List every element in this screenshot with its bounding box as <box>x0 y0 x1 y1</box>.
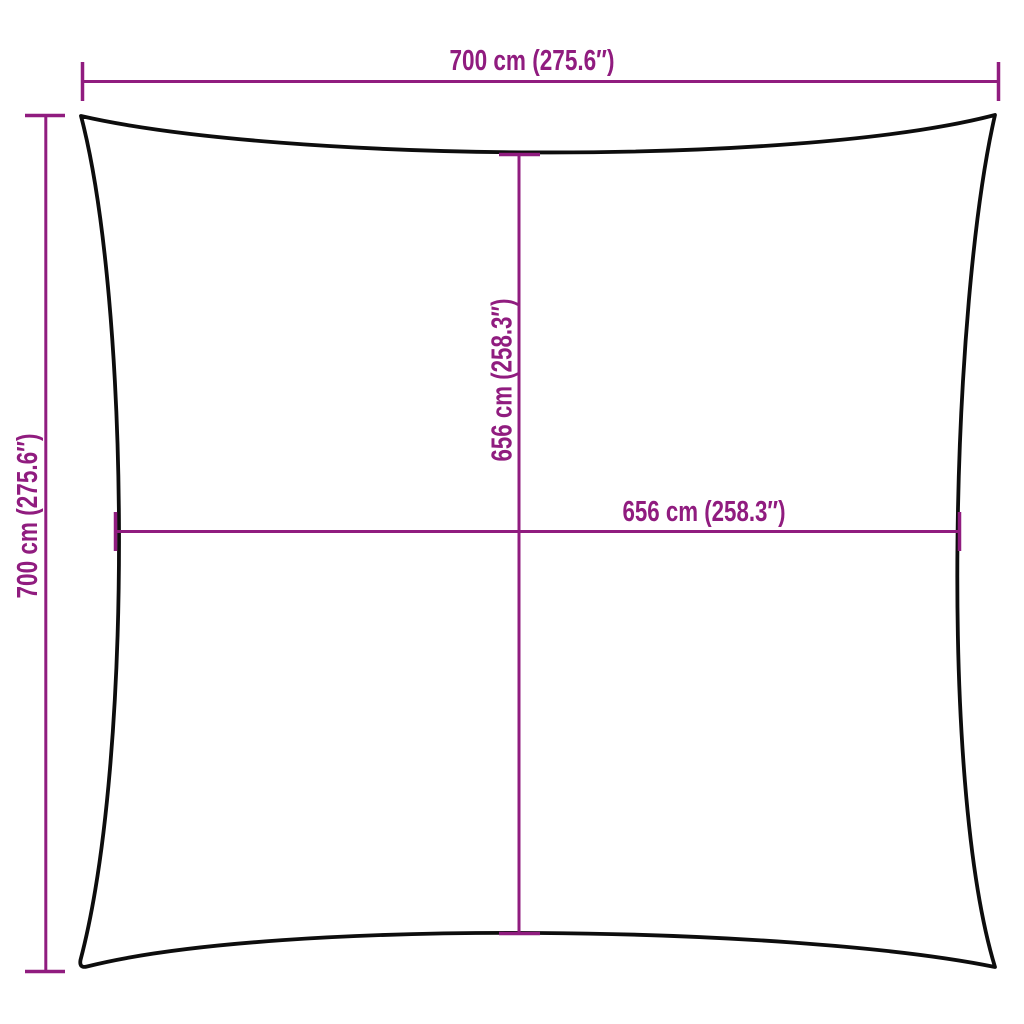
svg-text:656 cm (258.3″): 656 cm (258.3″) <box>487 299 519 462</box>
svg-text:700 cm (275.6″): 700 cm (275.6″) <box>450 45 615 77</box>
svg-text:700 cm (275.6″): 700 cm (275.6″) <box>12 434 44 599</box>
svg-text:656 cm (258.3″): 656 cm (258.3″) <box>623 496 786 528</box>
